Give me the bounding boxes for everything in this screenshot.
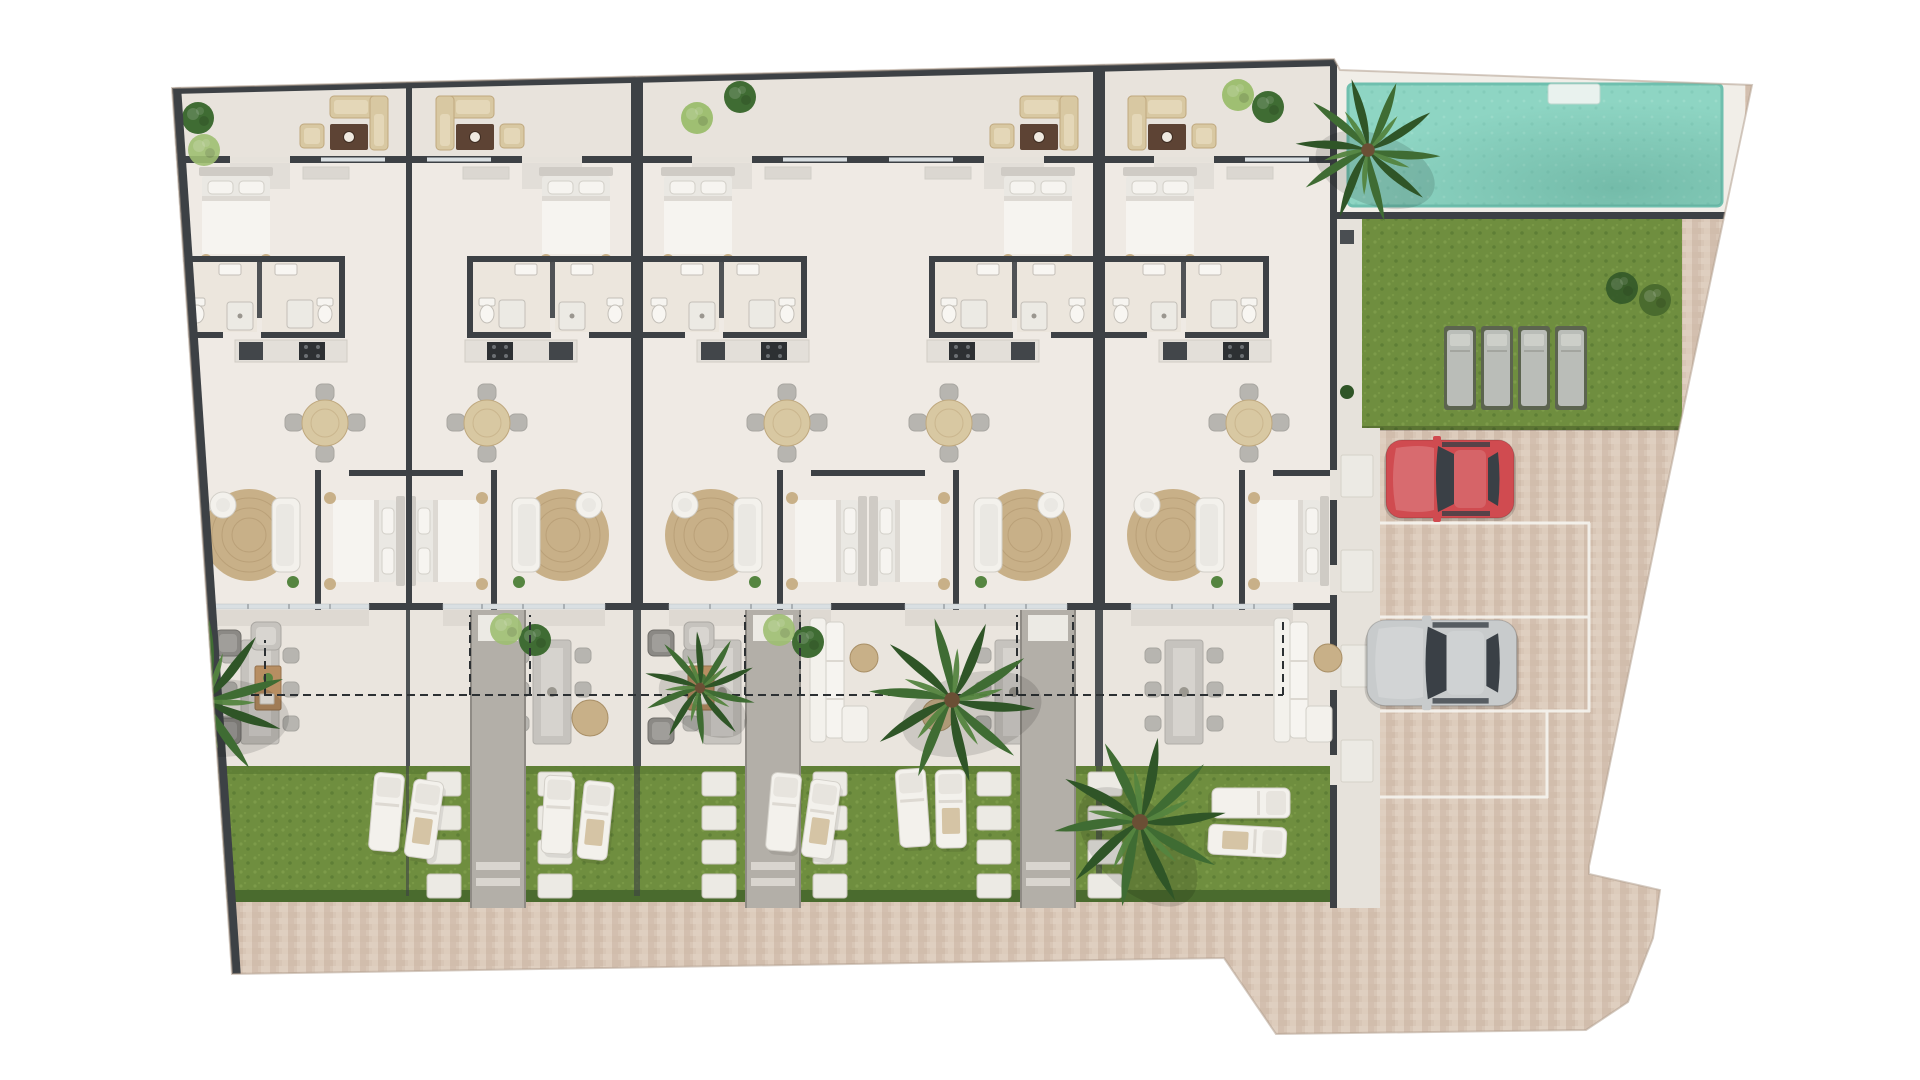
garden-walkway <box>745 610 801 908</box>
terrace-bush <box>681 102 713 134</box>
garden-walkway <box>470 610 526 908</box>
garden-bush <box>519 624 551 656</box>
floor-plan-page <box>0 0 1920 1080</box>
terrace-tree <box>182 102 214 134</box>
site <box>127 40 1790 1060</box>
garden-bush <box>490 613 522 645</box>
outdoor-shower <box>1340 230 1354 244</box>
silver-car <box>1365 616 1519 711</box>
lawn-bush <box>1606 272 1638 304</box>
lawn-bush <box>1639 284 1671 316</box>
terrace-tree <box>724 81 756 113</box>
garden-bush <box>792 626 824 658</box>
terrace-tree <box>1252 91 1284 123</box>
red-car <box>1384 436 1516 522</box>
potted-plant <box>1340 385 1354 399</box>
garden-bush <box>763 614 795 646</box>
outdoor-pouf <box>572 700 608 736</box>
terrace-bush <box>188 134 220 166</box>
pool-steps <box>1548 84 1600 104</box>
terrace-bush <box>1222 79 1254 111</box>
floor-plan-render <box>0 0 1920 1080</box>
garden-walkway <box>1020 610 1076 908</box>
